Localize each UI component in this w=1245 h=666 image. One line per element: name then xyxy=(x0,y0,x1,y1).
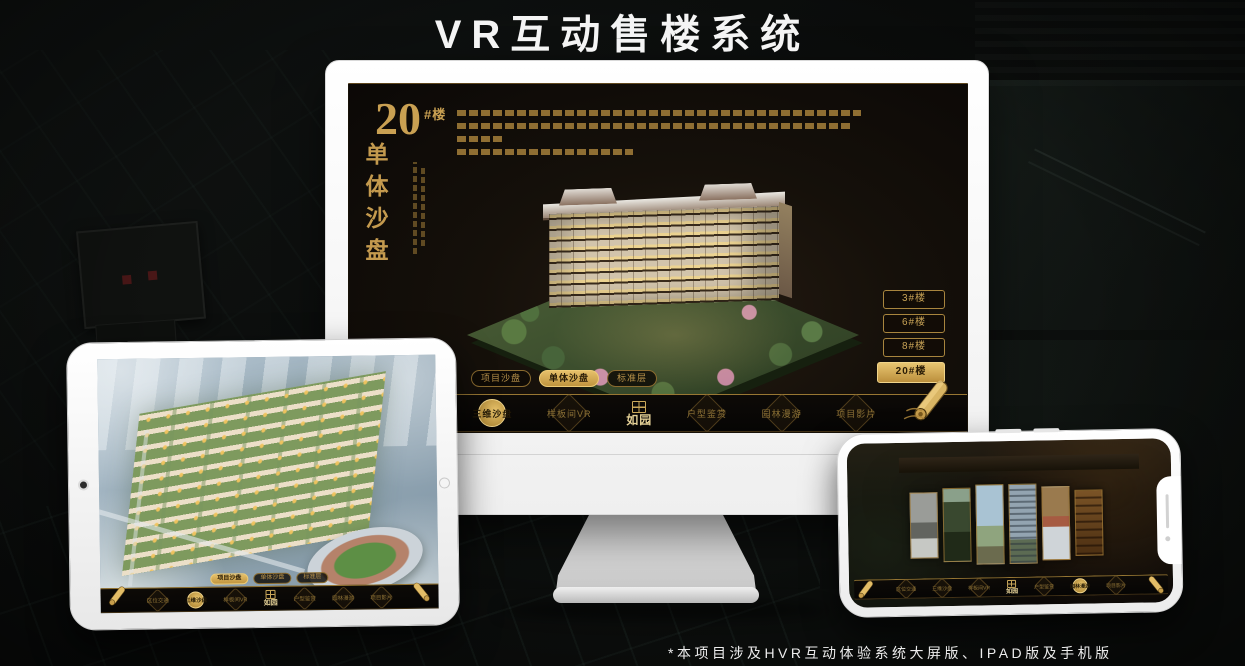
phone-notch xyxy=(1156,476,1182,564)
phone-speaker-icon xyxy=(1166,494,1170,528)
nav-item-project-film[interactable]: 项目影片 xyxy=(1106,581,1126,588)
nav-item-unit-plans[interactable]: 户型鉴赏 xyxy=(687,407,727,420)
nav-item-3d-sandtable[interactable]: 三维沙盘 xyxy=(932,585,952,592)
seal-icon xyxy=(266,590,276,599)
scroll-menu-icon[interactable] xyxy=(1145,573,1169,597)
tab-project-sandtable[interactable]: 项目沙盘 xyxy=(471,370,531,387)
phone-bottom-nav: 区位交通 三维沙盘 样板间VR 如园 户型鉴赏 园林漫游 项目影片 xyxy=(854,574,1168,599)
monitor-stand xyxy=(556,513,756,591)
scroll-menu-icon[interactable] xyxy=(853,578,877,602)
headline-number: 20 xyxy=(375,96,421,142)
floor-button-group: 3#楼 6#楼 8#楼 20#楼 xyxy=(877,290,945,383)
gallery-panel[interactable] xyxy=(975,484,1004,564)
nav-item-showroom-vr[interactable]: 样板间VR xyxy=(547,407,592,420)
nav-item-3d-sandtable[interactable]: 三维沙盘 xyxy=(472,407,512,420)
sandtable-sub-tabs: 项目沙盘 单体沙盘 标准层 xyxy=(471,370,657,387)
tablet-bottom-nav: 区位交通 三维沙盘 样板间VR 如园 户型鉴赏 园林漫游 项目影片 xyxy=(100,584,438,614)
brand-logo: 如园 xyxy=(626,401,652,426)
nav-item-unit-plans[interactable]: 户型鉴赏 xyxy=(294,594,316,602)
brand-logo-text: 如园 xyxy=(1006,588,1018,594)
brand-logo-text: 如园 xyxy=(626,414,652,426)
brand-logo: 如园 xyxy=(264,590,278,607)
seal-icon xyxy=(632,401,646,413)
tab-project-sandtable[interactable]: 项目沙盘 xyxy=(210,573,248,585)
vertical-caption-illegible xyxy=(413,162,417,254)
tab-single-sandtable[interactable]: 单体沙盘 xyxy=(253,573,291,585)
nav-item-unit-plans[interactable]: 户型鉴赏 xyxy=(1034,583,1054,590)
nav-item-garden-tour[interactable]: 园林漫游 xyxy=(762,407,802,420)
monitor-stand-base xyxy=(553,587,759,603)
phone-camera-icon xyxy=(1165,536,1170,541)
scroll-menu-icon[interactable] xyxy=(903,376,957,430)
seal-icon xyxy=(1007,579,1016,587)
phone-frame: 区位交通 三维沙盘 样板间VR 如园 户型鉴赏 园林漫游 项目影片 xyxy=(836,428,1183,618)
floor-button-6[interactable]: 6#楼 xyxy=(883,314,945,333)
vertical-caption-illegible xyxy=(421,168,425,246)
background-plaque xyxy=(76,221,206,329)
gallery-panel[interactable] xyxy=(1041,486,1070,560)
residential-building-model xyxy=(549,182,779,308)
gallery-panel[interactable] xyxy=(942,488,971,562)
page-title: VR互动售楼系统 xyxy=(0,2,1245,60)
scroll-menu-icon[interactable] xyxy=(103,584,129,610)
gallery-panel[interactable] xyxy=(1008,484,1037,564)
pergola-beam xyxy=(899,453,1139,472)
phone-volume-button xyxy=(1033,428,1059,432)
nav-item-showroom-vr[interactable]: 样板间VR xyxy=(223,595,247,603)
headline-vertical-label: 单体沙盘 xyxy=(357,142,391,270)
nav-item-3d-sandtable[interactable]: 三维沙盘 xyxy=(185,595,207,603)
tablet-camera-icon xyxy=(80,481,87,488)
stage: VR互动售楼系统 20 #楼 单体沙盘 xyxy=(0,0,1245,666)
gallery-panel[interactable] xyxy=(1074,489,1103,555)
floor-button-8[interactable]: 8#楼 xyxy=(883,338,945,357)
monitor-ground-shadow xyxy=(500,600,830,620)
tablet-sub-tabs: 项目沙盘 单体沙盘 标准层 xyxy=(210,572,328,585)
tablet-screen: 项目沙盘 单体沙盘 标准层 区位交通 三维沙盘 样板间VR 如园 户型鉴赏 园林… xyxy=(97,355,439,614)
floor-button-3[interactable]: 3#楼 xyxy=(883,290,945,309)
tab-standard-floor[interactable]: 标准层 xyxy=(296,572,328,584)
tablet-frame: 项目沙盘 单体沙盘 标准层 区位交通 三维沙盘 样板间VR 如园 户型鉴赏 园林… xyxy=(66,337,460,630)
brand-logo: 如园 xyxy=(1006,579,1018,594)
headline-suffix: #楼 xyxy=(424,104,446,123)
nav-item-location-traffic[interactable]: 区位交通 xyxy=(147,596,169,604)
nav-item-showroom-vr[interactable]: 样板间VR xyxy=(968,584,990,591)
tab-standard-floor[interactable]: 标准层 xyxy=(607,370,657,387)
nav-item-garden-tour[interactable]: 园林漫游 xyxy=(1070,582,1090,589)
phone-volume-button xyxy=(995,429,1021,433)
tab-single-sandtable[interactable]: 单体沙盘 xyxy=(539,370,599,387)
gallery-panels xyxy=(909,479,1106,568)
nav-item-garden-tour[interactable]: 园林漫游 xyxy=(332,593,354,601)
scroll-menu-icon[interactable] xyxy=(409,580,435,606)
footnote-text: *本项目涉及HVR互动体验系统大屏版、IPAD版及手机版 xyxy=(668,643,1113,663)
tablet-home-button[interactable] xyxy=(439,477,450,488)
phone-screen: 区位交通 三维沙盘 样板间VR 如园 户型鉴赏 园林漫游 项目影片 xyxy=(847,438,1174,608)
nav-item-project-film[interactable]: 项目影片 xyxy=(836,407,876,420)
nav-item-location-traffic[interactable]: 区位交通 xyxy=(896,585,916,592)
brand-logo-text: 如园 xyxy=(264,600,278,607)
headline: 20 #楼 xyxy=(375,96,446,142)
nav-item-project-film[interactable]: 项目影片 xyxy=(370,593,392,601)
gallery-panel[interactable] xyxy=(909,492,938,558)
background-photo-right-top xyxy=(990,80,1245,330)
